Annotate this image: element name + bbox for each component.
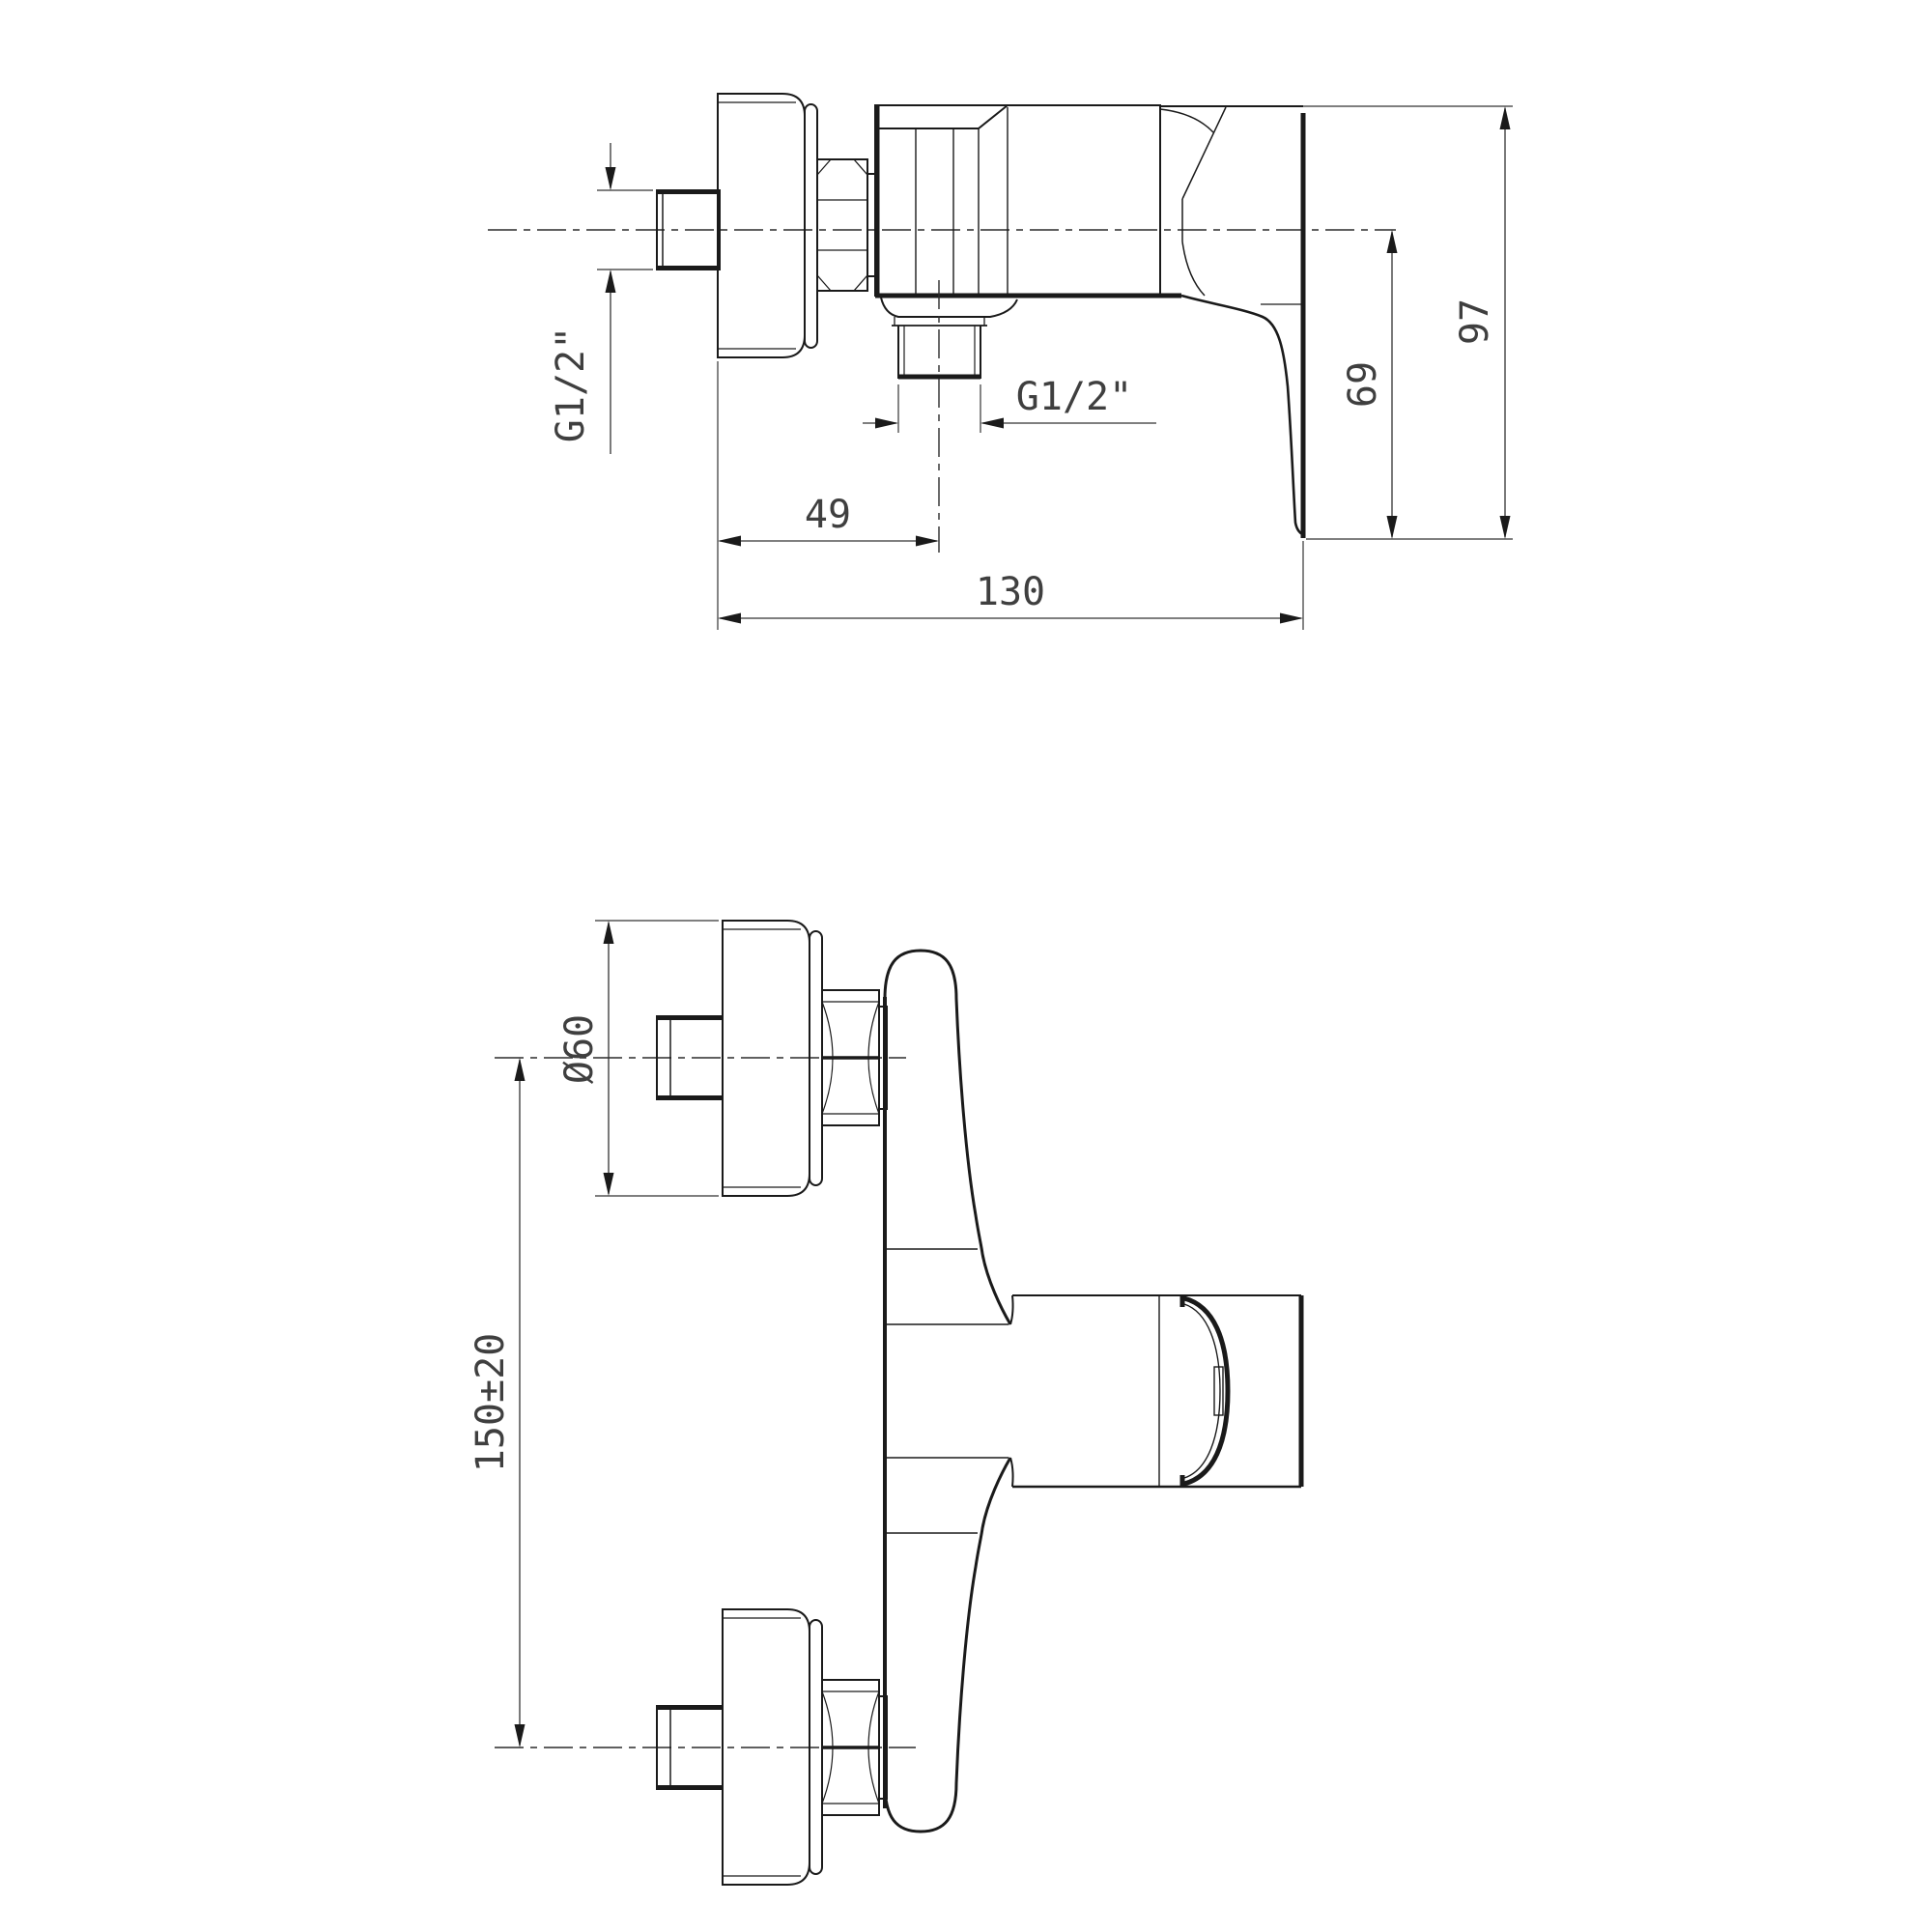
body-and-lever xyxy=(885,951,1013,1832)
hex-nut xyxy=(817,159,875,291)
shower-outlet xyxy=(881,280,1017,553)
dim-depth: 130 xyxy=(718,541,1303,630)
drawing-page: G1/2" G1/2" 49 130 xyxy=(0,0,1932,1932)
lever-upper-edge xyxy=(885,951,1010,1324)
lever-lower-edge xyxy=(885,1458,1010,1832)
dim-label-outlet-offset: 49 xyxy=(805,493,851,537)
dim-label-lever-drop: 69 xyxy=(1341,361,1385,408)
top-connection xyxy=(495,921,906,1196)
dim-label-outlet-thread: G1/2" xyxy=(1016,375,1132,419)
dim-label-connection-spacing: 150±20 xyxy=(469,1333,513,1473)
cartridge-dome xyxy=(1184,1298,1228,1484)
side-view: G1/2" G1/2" 49 130 xyxy=(488,94,1513,630)
dim-outlet-thread: G1/2" xyxy=(863,375,1156,433)
dim-label-depth: 130 xyxy=(976,570,1045,614)
handle-side xyxy=(1160,106,1305,538)
technical-drawing: G1/2" G1/2" 49 130 xyxy=(0,0,1932,1932)
front-view: Ø60 150±20 xyxy=(469,921,1301,1885)
wall-flange xyxy=(718,94,817,357)
dim-outlet-offset: 49 xyxy=(718,361,939,630)
dim-label-flange-diameter: Ø60 xyxy=(557,1014,602,1084)
dim-label-height: 97 xyxy=(1453,298,1497,345)
valve-block-front xyxy=(1012,1295,1301,1487)
dim-inlet-thread: G1/2" xyxy=(549,143,653,454)
dim-connection-spacing: 150±20 xyxy=(469,1058,526,1747)
bottom-connection xyxy=(495,1609,916,1885)
lever-outline xyxy=(1181,296,1305,535)
dim-heights: 69 97 xyxy=(1303,106,1513,539)
dim-label-inlet-thread: G1/2" xyxy=(549,327,593,442)
valve-body xyxy=(875,105,1181,296)
